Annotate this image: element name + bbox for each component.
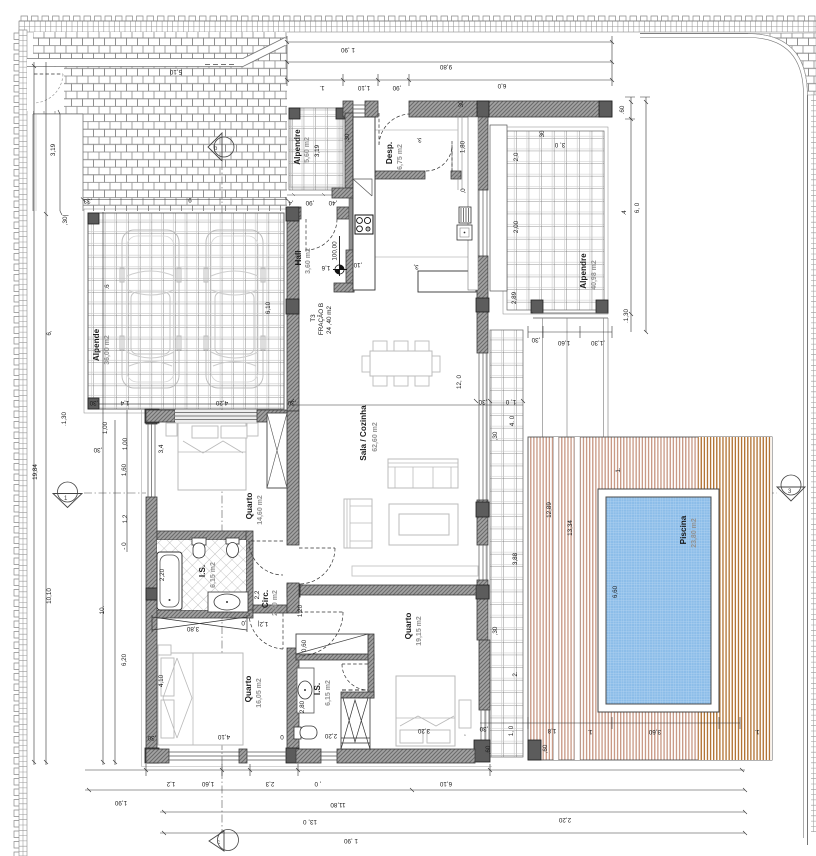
svg-text:6,10: 6,10 (265, 301, 272, 314)
svg-text:T3: T3 (310, 314, 317, 322)
svg-text:1,80: 1,80 (460, 140, 467, 153)
svg-text:- 0: - 0 (121, 542, 128, 550)
svg-text:1 ,90: 1 ,90 (341, 46, 356, 53)
svg-text:4. 0: 4. 0 (509, 415, 516, 426)
svg-text:1,60: 1,60 (201, 780, 214, 787)
svg-text:3,19: 3,19 (314, 144, 321, 157)
svg-text:16,05 m2: 16,05 m2 (256, 678, 263, 708)
svg-text:1.: 1. (754, 728, 760, 735)
svg-text:3,: 3, (413, 263, 419, 270)
svg-text:2,20: 2,20 (324, 732, 337, 739)
svg-text:6,75 m2: 6,75 m2 (397, 144, 404, 170)
svg-text:6, 0: 6, 0 (634, 202, 641, 213)
svg-text:Desp.: Desp. (385, 142, 394, 164)
svg-text:,60: ,60 (485, 745, 492, 754)
svg-text:,33: ,33 (83, 197, 92, 204)
svg-text:Circ.: Circ. (261, 590, 270, 608)
svg-text:.1,30: .1,30 (61, 412, 68, 427)
svg-text:30: 30 (458, 100, 465, 108)
svg-text:10,10: 10,10 (46, 588, 53, 604)
svg-text:23,80 m2: 23,80 m2 (691, 518, 698, 548)
svg-text:Piscina: Piscina (679, 515, 688, 544)
svg-text:1,2: 1,2 (166, 780, 175, 787)
svg-text:13, 0: 13, 0 (303, 818, 318, 825)
svg-text:FRAÇÃO B: FRAÇÃO B (316, 303, 325, 335)
svg-text:Quarto: Quarto (244, 676, 253, 703)
svg-text:,0: ,0 (460, 188, 467, 194)
svg-text:36,00 m2: 36,00 m2 (104, 335, 111, 365)
svg-text:,40: ,40 (328, 199, 337, 206)
svg-text:5,10: 5,10 (169, 68, 182, 75)
svg-text:19,84: 19,84 (32, 464, 39, 480)
svg-text:9,80: 9,80 (439, 63, 452, 70)
svg-text:1,60: 1,60 (121, 463, 128, 476)
svg-text:Alpendre: Alpendre (293, 129, 302, 165)
svg-text:1,00: 1,00 (122, 437, 129, 450)
svg-text:1,6: 1,6 (321, 264, 330, 271)
svg-text:1,10: 1,10 (357, 84, 370, 91)
svg-text:1.: 1. (319, 84, 325, 91)
svg-text:,30: ,30 (492, 431, 499, 440)
svg-text:13,34: 13,34 (567, 520, 574, 536)
svg-text:6,20: 6,20 (121, 653, 128, 666)
svg-text:2,80: 2,80 (299, 700, 306, 713)
svg-text:,1,30: ,1,30 (591, 339, 606, 346)
svg-text:Sala / Cozinha: Sala / Cozinha (359, 405, 368, 461)
svg-text:1,60: 1,60 (557, 339, 570, 346)
svg-text:1,2|: 1,2| (257, 620, 268, 627)
svg-text:3,88: 3,88 (512, 552, 519, 565)
svg-text:11,80: 11,80 (330, 801, 346, 808)
svg-text:.60: .60 (619, 105, 626, 114)
svg-text:Hall: Hall (294, 250, 303, 265)
svg-text:12,89: 12,89 (546, 502, 553, 518)
svg-text:2,3: 2,3 (265, 780, 274, 787)
svg-text:1, 0: 1, 0 (505, 398, 516, 405)
svg-text:,: , (464, 733, 466, 740)
svg-text:1,2: 1,2 (122, 514, 129, 523)
svg-text:1,8: 1,8 (547, 727, 556, 734)
svg-text:,30: ,30 (93, 446, 102, 453)
svg-text:,30|: ,30| (62, 214, 69, 225)
svg-text:1.: 1. (615, 467, 622, 473)
svg-text:I.S.: I.S. (198, 565, 207, 577)
svg-text:14,60 m2: 14,60 m2 (257, 495, 264, 525)
svg-text:Quarto: Quarto (404, 613, 413, 640)
svg-text:3,60 m2: 3,60 m2 (305, 248, 312, 274)
svg-text:Quarto: Quarto (245, 493, 254, 520)
svg-text:6,60: 6,60 (612, 585, 619, 598)
svg-text:4,10: 4,10 (217, 733, 230, 740)
svg-text:2,20: 2,20 (558, 816, 571, 823)
svg-text:3,60: 3,60 (648, 728, 661, 735)
svg-text:3,19: 3,19 (50, 143, 57, 156)
svg-text:,90: ,90 (305, 199, 314, 206)
svg-text:,30: ,30 (479, 725, 488, 732)
svg-text:,0: ,0 (241, 619, 247, 626)
svg-text:6,15 m2: 6,15 m2 (210, 562, 217, 588)
svg-text:100,00: 100,00 (332, 241, 339, 261)
svg-text:2,2: 2,2 (254, 590, 261, 599)
svg-text:.4: .4 (621, 210, 628, 216)
svg-text:.6: .6 (104, 284, 111, 290)
svg-text:.1,30: .1,30 (623, 309, 630, 324)
svg-text:,60: ,60 (542, 744, 549, 753)
svg-text:1, 0: 1, 0 (508, 725, 515, 736)
svg-text:6,10: 6,10 (439, 780, 452, 787)
svg-text:1,00: 1,00 (102, 421, 109, 434)
svg-text:0: 0 (280, 733, 284, 740)
svg-text:,10: ,10 (353, 261, 362, 268)
svg-text:0,60: 0,60 (301, 639, 308, 652)
svg-text:2,00: 2,00 (513, 220, 520, 233)
svg-text:,30: ,30 (147, 734, 156, 741)
svg-text:2,89: 2,89 (511, 291, 518, 304)
svg-text:, 0: , 0 (314, 780, 321, 787)
svg-text:4,20: 4,20 (215, 399, 228, 406)
svg-text:12, 0: 12, 0 (456, 375, 463, 390)
svg-text:6,0: 6,0 (497, 82, 506, 89)
svg-text:3, 0: 3, 0 (554, 141, 565, 148)
svg-text:1.: 1. (587, 728, 593, 735)
svg-text:1,20: 1,20 (297, 604, 304, 617)
svg-text:40,98 m2: 40,98 m2 (591, 260, 598, 290)
svg-text:,30: ,30 (531, 336, 540, 343)
svg-text:30: 30 (539, 130, 546, 138)
svg-text:,30: ,30 (478, 398, 487, 405)
svg-text:I.S.: I.S. (313, 683, 322, 695)
svg-text:Alpende: Alpende (92, 328, 101, 361)
svg-text:6,: 6, (46, 330, 53, 336)
svg-text:3,4: 3,4 (158, 444, 165, 453)
svg-text:c: c (217, 840, 220, 846)
svg-text:3.: 3. (416, 136, 422, 143)
svg-text:9: 9 (188, 196, 192, 203)
svg-text:4,10: 4,10 (158, 674, 165, 687)
svg-text:,90: ,90 (392, 84, 401, 91)
svg-text:,4: ,4 (288, 199, 294, 206)
svg-text:2,20: 2,20 (159, 568, 166, 581)
svg-text:19,15 m2: 19,15 m2 (416, 616, 423, 646)
svg-text:,30: ,30 (89, 399, 98, 406)
svg-text:,30: ,30 (344, 133, 351, 142)
svg-text:1,4: 1,4 (120, 399, 129, 406)
svg-text:3,20: 3,20 (417, 727, 430, 734)
svg-text:2,70 m2: 2,70 m2 (272, 590, 279, 616)
svg-text:,30: ,30 (492, 626, 499, 635)
svg-text:3,80: 3,80 (186, 625, 199, 632)
svg-text:24 ,40 m2: 24 ,40 m2 (326, 306, 333, 335)
svg-text:62,60 m2: 62,60 m2 (372, 422, 379, 452)
svg-text:5,60 m2: 5,60 m2 (304, 137, 311, 163)
svg-text:2.: 2. (512, 671, 519, 677)
svg-text:2,0: 2,0 (513, 152, 520, 161)
svg-text:6,15 m2: 6,15 m2 (325, 680, 332, 706)
svg-text:1 ,90: 1 ,90 (344, 837, 359, 844)
svg-text:Alpendre: Alpendre (579, 253, 588, 289)
svg-text:1,90: 1,90 (114, 799, 127, 806)
svg-text:10.: 10. (99, 605, 106, 614)
